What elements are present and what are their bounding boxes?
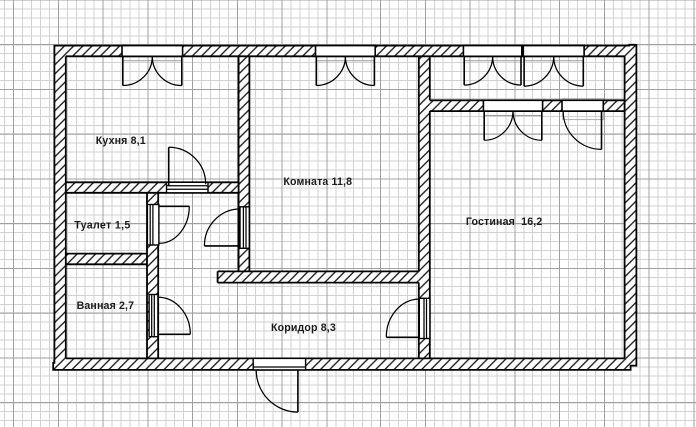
svg-text:Комната 11,8: Комната 11,8	[283, 176, 352, 188]
svg-text:Кухня 8,1: Кухня 8,1	[96, 135, 146, 147]
svg-text:Гостиная 16,2: Гостиная 16,2	[466, 216, 542, 228]
svg-text:Коридор 8,3: Коридор 8,3	[271, 322, 336, 334]
svg-text:Ванная 2,7: Ванная 2,7	[77, 300, 135, 312]
svg-text:Туалет 1,5: Туалет 1,5	[74, 220, 130, 232]
